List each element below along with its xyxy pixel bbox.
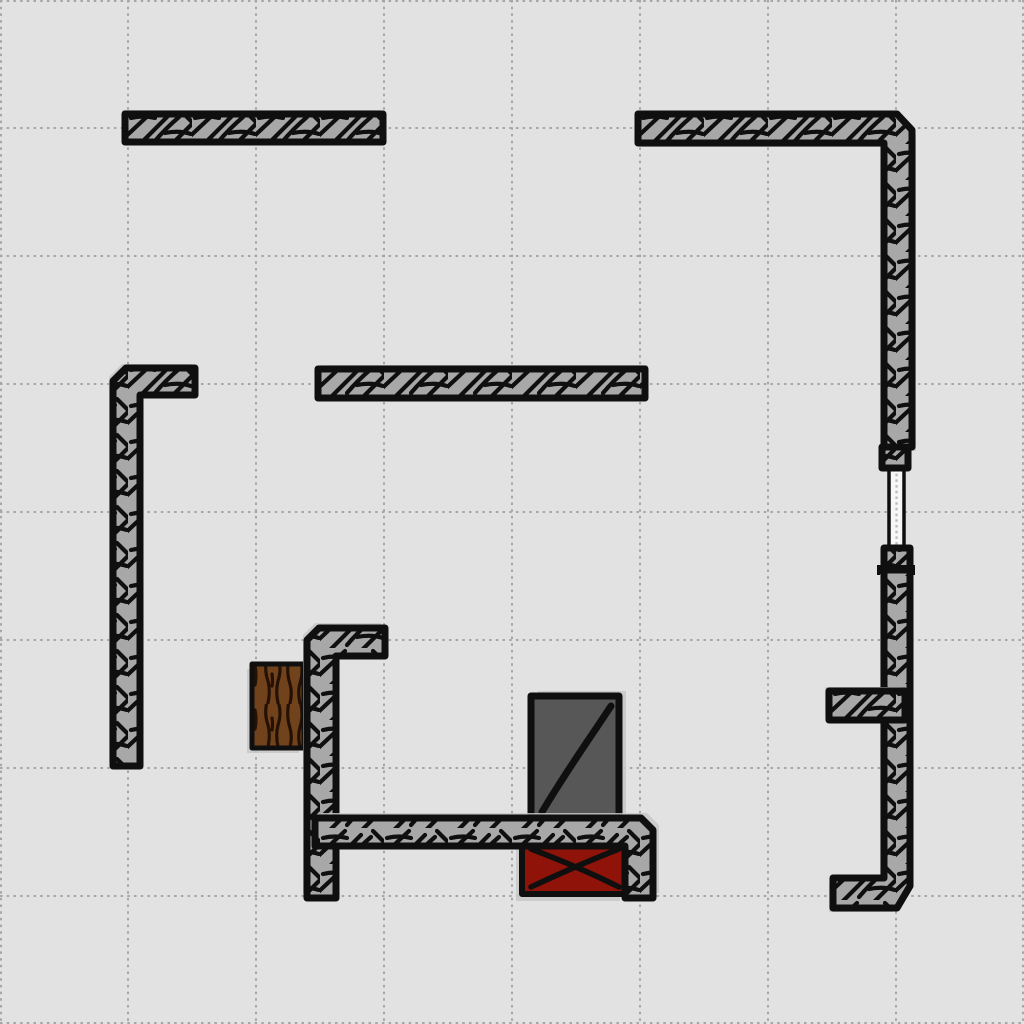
danger-box[interactable] <box>516 842 626 901</box>
wooden-crate[interactable] <box>247 664 304 753</box>
rope-anchor-top[interactable] <box>882 447 908 468</box>
metal-box[interactable] <box>531 691 626 818</box>
canvas-background <box>0 0 1024 1024</box>
rope[interactable] <box>889 459 904 556</box>
wall-right-stub[interactable] <box>825 687 905 720</box>
level-canvas[interactable] <box>0 0 1024 1024</box>
game-level-viewport[interactable] <box>0 0 1024 1024</box>
wall-top-left[interactable] <box>122 110 383 142</box>
wall-middle[interactable] <box>318 365 648 398</box>
